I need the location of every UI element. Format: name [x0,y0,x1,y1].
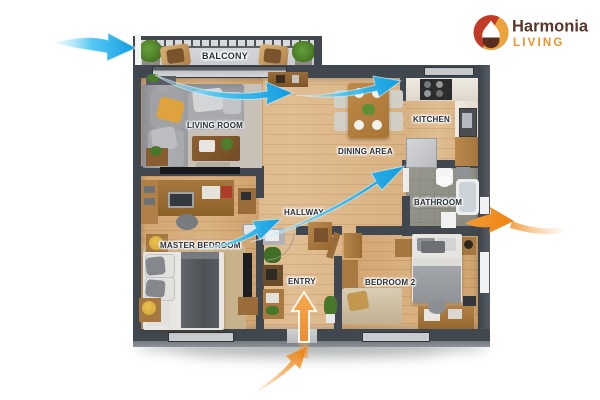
svg-text:LIVING: LIVING [513,37,565,49]
svg-text:Harmonia: Harmonia [512,18,589,36]
